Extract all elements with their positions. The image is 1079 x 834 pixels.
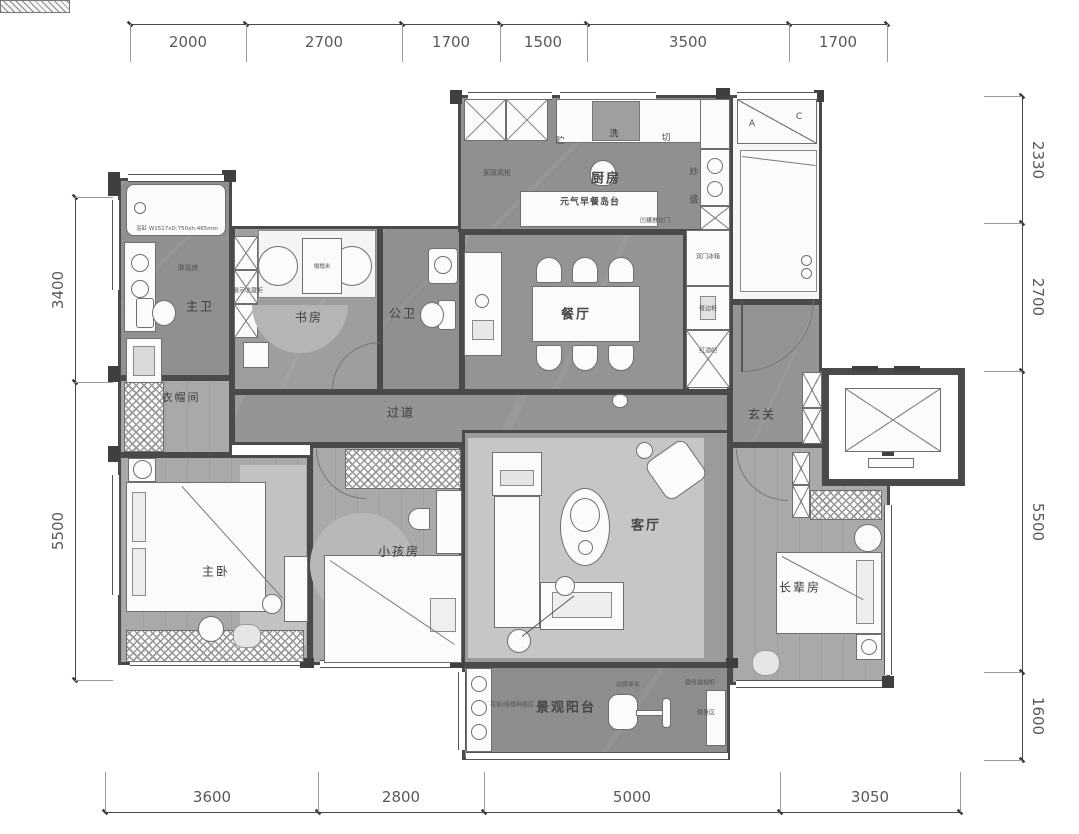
side-table	[555, 576, 575, 596]
kitchen-cabinet-cell	[700, 206, 730, 230]
floor-plan-canvas: 2000 2700 1700 1500 3500 1700 3600 2800 …	[0, 0, 1079, 834]
label-foyer: 玄关	[748, 406, 776, 423]
label-balcony: 景观阳台	[536, 697, 596, 716]
cabinet-detail	[475, 294, 489, 308]
dim-bottom-3: 3050	[851, 788, 889, 806]
dim-bottom-2: 5000	[613, 788, 651, 806]
kids-desk-chair	[408, 508, 430, 530]
label-kids-room: 小孩房	[378, 543, 420, 560]
kitchen-counter-corner	[700, 99, 730, 149]
label-breakfast-island: 元气早餐岛台	[560, 195, 620, 208]
label-kitchen: 厨房	[591, 168, 621, 187]
dim-top-5: 1700	[819, 33, 857, 51]
dining-chair	[608, 257, 634, 283]
bathtub-drain	[134, 202, 146, 214]
window	[736, 680, 882, 688]
window	[458, 672, 466, 750]
dim-line-right	[1022, 96, 1023, 760]
label-shower: 淋浴房	[178, 263, 199, 273]
dim-extension	[75, 382, 113, 383]
bed-pillow	[132, 492, 146, 542]
label-guest-bath: 公卫	[389, 305, 417, 322]
dim-extension	[587, 24, 588, 62]
nightstand-lamp	[133, 460, 152, 479]
wall-pillar	[108, 172, 120, 196]
label-hallway: 过道	[387, 404, 415, 421]
label-workflow-cut: 切	[661, 131, 670, 144]
window	[112, 200, 120, 290]
label-display-cabinet: 展示收藏柜	[233, 286, 263, 295]
foyer-cabinet-cell	[802, 408, 822, 444]
dim-extension	[484, 772, 485, 812]
label-living: 客厅	[631, 515, 661, 534]
label-workflow-serve: 盛	[689, 193, 698, 206]
label-spin-bike: 动感单车	[616, 680, 640, 689]
label-sideboard: 餐边柜	[699, 304, 717, 313]
dining-chair	[608, 345, 634, 371]
wine-bar-cabinet	[686, 330, 730, 388]
dim-bottom-1: 2800	[382, 788, 420, 806]
label-tatami: 榻榻米	[314, 262, 331, 270]
label-wine-bar: 红酒吧	[699, 346, 717, 355]
label-fridge: 双门冰箱	[696, 252, 720, 261]
dim-extension	[960, 772, 961, 812]
elder-side-table	[854, 524, 882, 552]
elevator-door-jamb	[894, 366, 920, 371]
dim-extension	[318, 772, 319, 812]
wall-pillar	[882, 676, 894, 688]
elder-cabinet-cell	[792, 452, 810, 485]
bed-pillow	[132, 548, 146, 596]
dining-chair	[536, 345, 562, 371]
person-figure	[233, 624, 261, 648]
dim-extension	[246, 24, 247, 62]
person-figure	[752, 650, 780, 676]
stair-mark-a: A	[749, 119, 755, 129]
dim-extension	[500, 24, 501, 62]
label-fitness-area: 健身区	[697, 708, 715, 717]
wall-pillar	[108, 446, 120, 462]
label-dining: 餐厅	[561, 304, 591, 323]
label-master-bedroom: 主卧	[202, 563, 230, 580]
dim-top-1: 2700	[305, 33, 343, 51]
dresser	[284, 556, 308, 622]
housekeeping-cabinet-cell	[506, 99, 548, 141]
porch-detail	[801, 255, 812, 266]
dim-top-2: 1700	[432, 33, 470, 51]
dim-line-left	[75, 197, 76, 680]
label-sliding-door: 凹槽推拉门	[640, 216, 670, 225]
bath-cabinet-inner	[133, 346, 155, 376]
dim-extension	[75, 680, 113, 681]
dim-left-0: 3400	[49, 271, 67, 309]
hatched-ledge	[0, 0, 70, 13]
label-plant-area: 花架/绿植种植区	[490, 700, 534, 709]
toilet-bowl	[420, 302, 444, 328]
dim-right-0: 2330	[1029, 141, 1047, 179]
wall-pillar	[450, 90, 462, 104]
dining-chair	[536, 257, 562, 283]
bath-sink	[131, 280, 149, 298]
guest-sink	[434, 256, 452, 274]
dim-right-2: 5500	[1029, 503, 1047, 541]
dim-right-3: 1600	[1029, 697, 1047, 735]
elevator-door-jamb	[852, 366, 878, 371]
dim-extension	[780, 772, 781, 812]
study-desk	[243, 342, 269, 368]
elder-cabinet-cell	[792, 485, 810, 518]
label-bathtub-spec: 浴缸 W1517xD:750xh:465mm	[136, 224, 218, 232]
foyer-cabinet-cell	[802, 372, 822, 408]
label-fitness-cabinet: 健身器械柜	[685, 678, 715, 687]
dim-top-0: 2000	[169, 33, 207, 51]
dining-chair	[572, 345, 598, 371]
dim-extension	[789, 24, 790, 62]
window	[112, 475, 120, 595]
label-cloakroom: 衣帽间	[162, 389, 201, 405]
spin-bike-flywheel	[608, 694, 638, 730]
window	[884, 505, 892, 675]
egg-chair-footrest	[578, 540, 593, 555]
wall-pillar	[222, 170, 236, 182]
dim-extension	[75, 197, 113, 198]
label-master-bath: 主卫	[186, 298, 214, 315]
dog-figure	[612, 394, 628, 408]
bath-sink	[131, 254, 149, 272]
dim-left-1: 5500	[49, 512, 67, 550]
plant	[471, 700, 487, 716]
spin-bike-handlebar	[662, 698, 671, 728]
dim-extension	[984, 223, 1022, 224]
stair-mark-c: C	[796, 112, 802, 122]
dim-extension	[984, 672, 1022, 673]
cabinet-detail	[472, 320, 494, 340]
living-cabinet-drawer	[500, 470, 534, 486]
plant	[471, 724, 487, 740]
entry-door-leaf	[741, 300, 743, 372]
side-stool	[636, 442, 653, 459]
dim-extension	[984, 371, 1022, 372]
display-cabinet-cell	[234, 236, 258, 270]
wall-pillar	[108, 366, 120, 382]
wardrobe-rack	[124, 382, 164, 452]
dim-line-bottom	[105, 812, 960, 813]
elevator-car	[845, 388, 941, 452]
dim-extension	[402, 24, 403, 62]
dim-top-4: 3500	[669, 33, 707, 51]
dim-bottom-0: 3600	[193, 788, 231, 806]
elevator-door	[868, 458, 914, 468]
label-study: 书房	[295, 309, 323, 326]
dining-chair	[572, 257, 598, 283]
dim-extension	[984, 96, 1022, 97]
stove-burner	[707, 158, 723, 174]
housekeeping-cabinet-cell	[464, 99, 506, 141]
label-workflow-fry: 炒	[689, 165, 698, 178]
pouf	[198, 616, 224, 642]
dim-extension	[105, 772, 106, 812]
dim-extension	[984, 760, 1022, 761]
dim-right-1: 2700	[1029, 278, 1047, 316]
plant-pot	[861, 639, 877, 655]
label-elder-room: 长辈房	[779, 579, 821, 596]
bed-pillow	[856, 560, 874, 624]
window	[128, 174, 224, 182]
kids-desk	[436, 490, 462, 554]
label-workflow-wash: 洗	[609, 127, 618, 140]
window	[466, 752, 728, 760]
sofa	[494, 496, 540, 628]
stove-burner	[707, 181, 723, 197]
round-chair	[258, 246, 298, 286]
toilet-bowl	[152, 300, 176, 326]
label-housekeeping-cabinet: 家政高柜	[483, 168, 511, 178]
plant	[471, 676, 487, 692]
egg-chair-seat	[570, 498, 600, 532]
dresser-stool	[262, 594, 282, 614]
wall-pillar	[726, 658, 738, 668]
porch-detail	[801, 268, 812, 279]
elder-wardrobe	[810, 490, 882, 520]
fitness-cabinet-box	[706, 690, 726, 746]
dim-extension	[130, 24, 131, 62]
dim-top-3: 1500	[524, 33, 562, 51]
label-workflow-store: 贮	[555, 134, 564, 147]
dim-extension	[887, 24, 888, 62]
bed-pillow	[430, 598, 456, 632]
